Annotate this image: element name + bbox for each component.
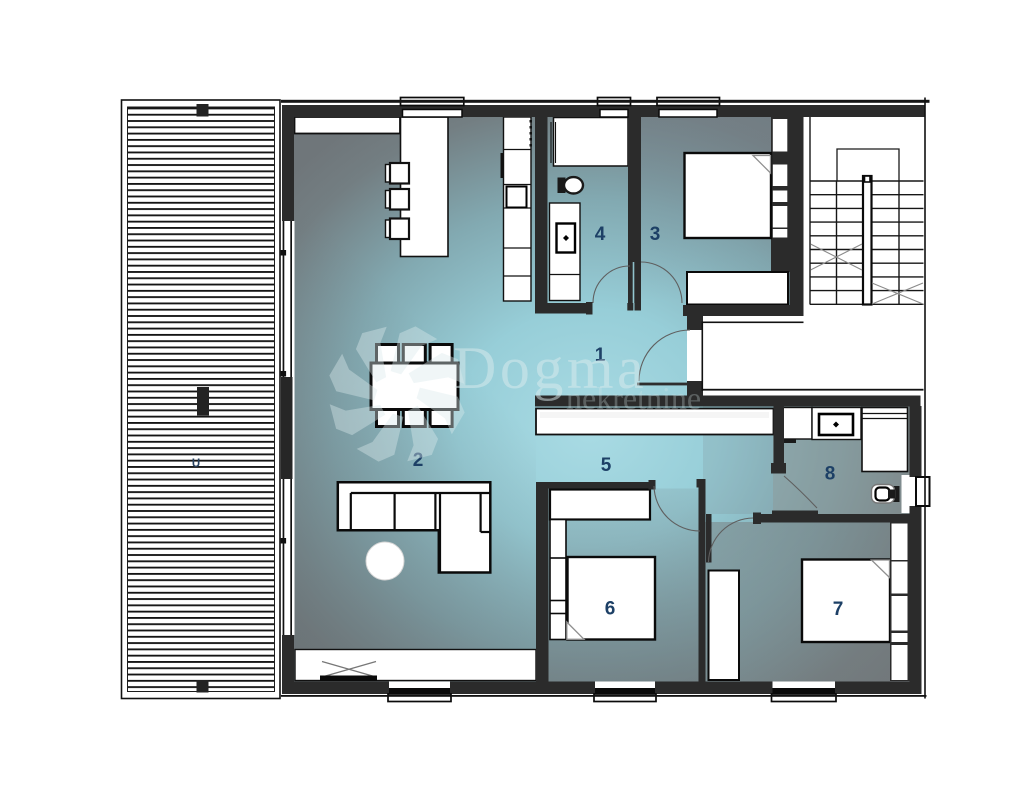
svg-text:5: 5 (601, 455, 612, 476)
svg-text:8: 8 (825, 464, 836, 485)
svg-text:nekretnine: nekretnine (566, 380, 701, 416)
svg-text:6: 6 (605, 599, 616, 620)
svg-text:4: 4 (595, 224, 606, 245)
svg-text:7: 7 (833, 599, 844, 620)
svg-text:U: U (192, 458, 200, 470)
svg-text:3: 3 (650, 224, 661, 245)
